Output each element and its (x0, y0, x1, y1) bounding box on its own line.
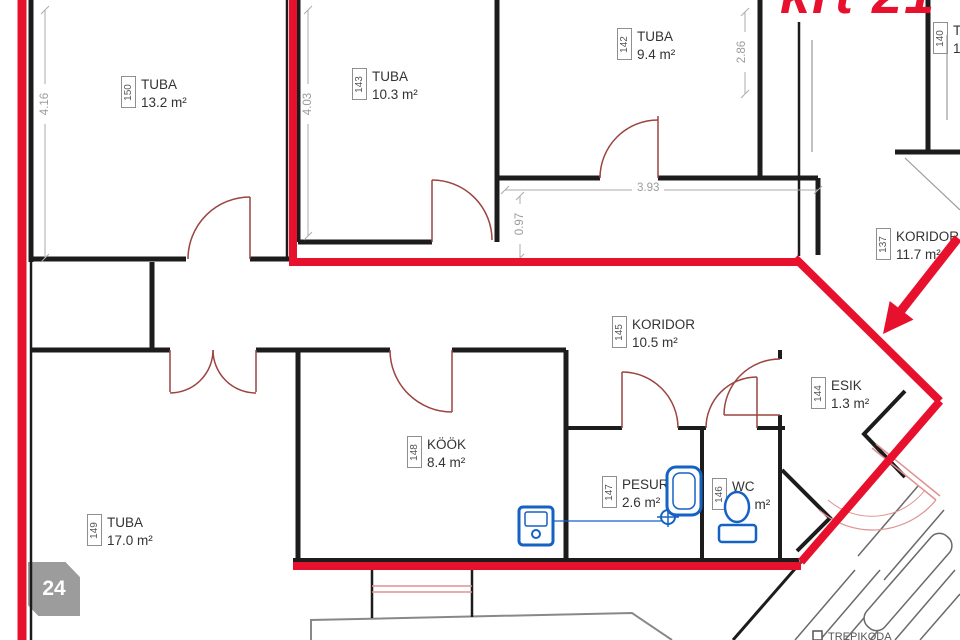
room-label-tuba-142: 142 TUBA9.4 m² (617, 28, 675, 64)
stairwell-label: TREPIKODA (828, 631, 892, 640)
room-label-tuba-149: 149 TUBA17.0 m² (87, 514, 153, 550)
room-number-box: 137 (876, 228, 891, 260)
dimension-hall-width: 3.93 (632, 182, 664, 194)
room-name: TUBA (372, 68, 418, 86)
floorplan-canvas: 24 150 TUBA13.2 m² 143 TUBA10.3 m² 142 T… (0, 0, 960, 640)
kitchen-sink-icon (519, 507, 553, 545)
room-label-esik-144: 144 ESIK1.3 m² (811, 377, 869, 413)
room-area: 2.6 m² (622, 494, 699, 512)
room-area: 17.0 m² (107, 532, 153, 550)
unit-marker-tag: 24 (28, 562, 80, 616)
room-label-koridor-145: 145 KORIDOR10.5 m² (612, 316, 695, 352)
room-number-box: 143 (352, 68, 367, 100)
room-area: 11.7 m² (896, 246, 959, 264)
dimension-hall-depth: 0.97 (514, 204, 526, 244)
room-area: 10.5 m² (632, 334, 695, 352)
room-area: 13.2 m² (141, 94, 187, 112)
room-label-wc-146: 146 WC1.1 m² (712, 478, 770, 514)
room-number-box: 146 (712, 478, 727, 510)
door-swings (170, 116, 780, 428)
room-label-pesuruum-147: 147 PESURUUM2.6 m² (602, 476, 699, 512)
room-number-box: 147 (602, 476, 617, 508)
room-name: KÖÖK (427, 436, 466, 454)
room-area: 9.4 m² (637, 46, 675, 64)
room-name: T (953, 22, 960, 40)
dimension-mid-room-height: 4.03 (302, 84, 314, 124)
room-name: PESURUUM (622, 476, 699, 494)
room-number-box: 145 (612, 316, 627, 348)
room-name: TUBA (107, 514, 153, 532)
unit-marker-number: 24 (42, 577, 65, 601)
room-area: 1 (953, 40, 960, 58)
room-name: TUBA (637, 28, 675, 46)
room-number-box: 140 (933, 22, 948, 54)
entrance-door-swing (819, 444, 940, 530)
room-number-box: 142 (617, 28, 632, 60)
dimension-lines (41, 6, 822, 262)
room-area: 1.3 m² (831, 395, 869, 413)
dimension-right-room-height: 2.86 (736, 32, 748, 72)
room-label-tuba-143: 143 TUBA10.3 m² (352, 68, 418, 104)
dimension-left-room-height: 4.16 (39, 84, 51, 124)
room-area: 1.1 m² (732, 496, 770, 514)
room-label-kook-148: 148 KÖÖK8.4 m² (407, 436, 466, 472)
room-label-koridor-137: 137 KORIDOR11.7 m² (876, 228, 959, 264)
kitchen-window (372, 586, 472, 592)
apartment-annotation: krt 21 (780, 0, 936, 26)
room-name: KORIDOR (896, 228, 959, 246)
room-area: 8.4 m² (427, 454, 466, 472)
room-name: TUBA (141, 76, 187, 94)
room-number-box: 148 (407, 436, 422, 468)
room-label-140-clipped: 140 T1 (933, 22, 960, 58)
balcony-outline (311, 613, 672, 640)
room-name: KORIDOR (632, 316, 695, 334)
room-label-tuba-150: 150 TUBA13.2 m² (121, 76, 187, 112)
room-name: WC (732, 478, 770, 496)
room-number-box: 150 (121, 76, 136, 108)
room-area: 10.3 m² (372, 86, 418, 104)
room-number-box: 144 (811, 377, 826, 409)
room-number-box: 149 (87, 514, 102, 546)
room-name: ESIK (831, 377, 869, 395)
